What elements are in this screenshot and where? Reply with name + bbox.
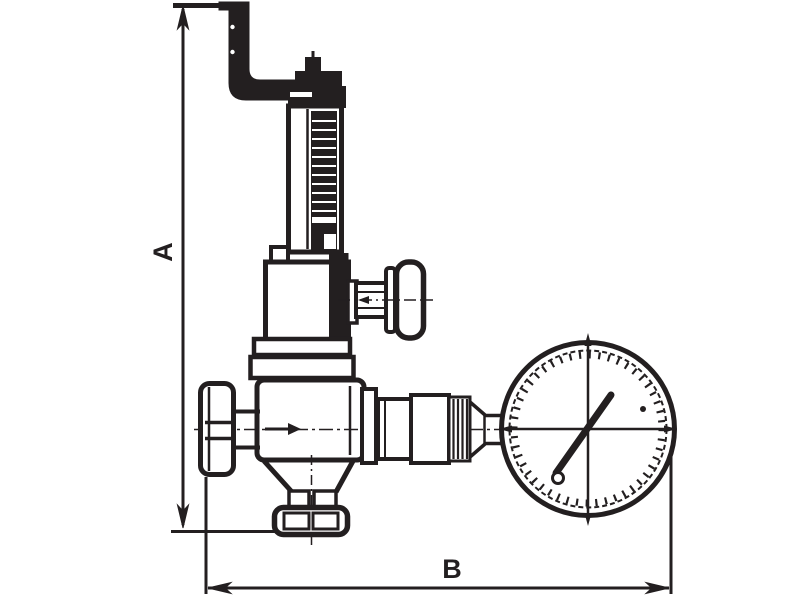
- gauge-centerline-tip-icon: [585, 513, 592, 526]
- outlet-union: [362, 389, 504, 463]
- cap-nub: [305, 57, 321, 72]
- gauge-dial-dot: [640, 406, 646, 412]
- stem-gap: [312, 217, 336, 223]
- bottom-flange: [264, 461, 353, 535]
- union-taper: [470, 402, 485, 415]
- exhaust-pipe: [219, 2, 303, 100]
- pipe-weld-dot: [230, 25, 234, 29]
- lower-flange: [251, 357, 354, 378]
- cap-block: [295, 71, 342, 88]
- dimension-a-label: A: [148, 242, 178, 262]
- pressure-gauge: [499, 333, 677, 526]
- bonnet-shade-band: [329, 253, 349, 350]
- gauge-needle-hub: [553, 473, 564, 484]
- union-taper: [470, 444, 485, 457]
- valve-technical-drawing-page: A B: [0, 0, 800, 598]
- threaded-stem: [311, 111, 337, 250]
- foot-taper: [264, 461, 292, 492]
- pipe-weld-dot: [230, 50, 234, 54]
- inlet-knob: [201, 384, 234, 475]
- dimension-b-label: B: [442, 554, 462, 584]
- gauge-centerline-tip-icon: [585, 333, 592, 346]
- bonnet: [266, 247, 349, 350]
- bonnet-flanges: [251, 339, 354, 378]
- upper-flange: [254, 339, 350, 355]
- foot-window: [284, 513, 309, 529]
- spring-housing: [289, 106, 342, 252]
- valve-technical-drawing: A B: [0, 0, 800, 598]
- outlet-section: [378, 399, 411, 459]
- valve-body: [257, 380, 364, 460]
- stem-notch: [324, 234, 336, 249]
- valve-body-outline: [257, 380, 364, 460]
- foot-window: [313, 513, 338, 529]
- union-nut: [411, 395, 449, 463]
- top-cap: [288, 51, 346, 108]
- side-handle: [338, 262, 433, 338]
- outlet-flange: [362, 389, 376, 463]
- cap-slit: [290, 92, 312, 97]
- foot-taper: [336, 461, 353, 492]
